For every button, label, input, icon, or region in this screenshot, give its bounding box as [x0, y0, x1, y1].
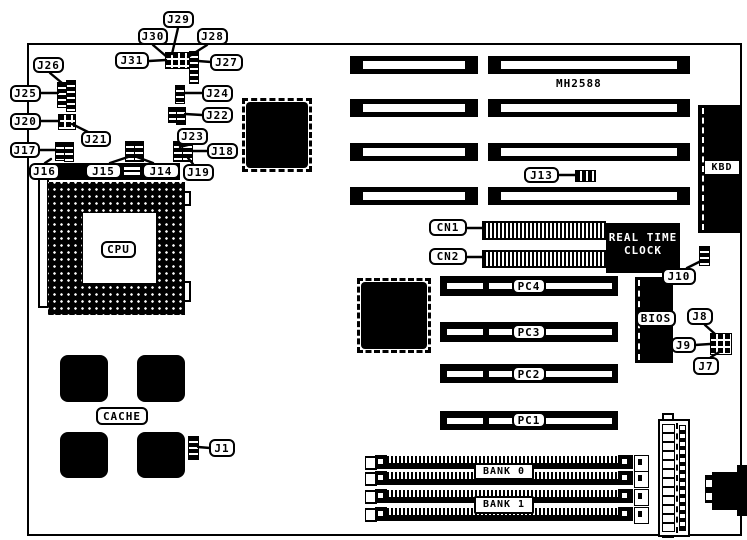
label-j16: J16: [29, 163, 60, 180]
motherboard-diagram: MH2588 KBD REAL TIME CLOCK: [0, 0, 747, 540]
label-j27: J27: [210, 54, 243, 71]
label-j29: J29: [163, 11, 194, 28]
label-bank0: BANK 0: [474, 463, 534, 480]
label-j24: J24: [202, 85, 233, 102]
label-j26: J26: [33, 57, 64, 73]
label-j28: J28: [197, 28, 228, 45]
label-cn2: CN2: [429, 248, 467, 265]
label-j8: J8: [687, 308, 713, 325]
label-j14: J14: [142, 163, 180, 179]
label-j7: J7: [693, 357, 719, 375]
label-j25: J25: [10, 85, 41, 102]
label-cn1: CN1: [429, 219, 467, 236]
label-j23: J23: [177, 128, 208, 145]
label-j18: J18: [207, 143, 238, 159]
label-j15: J15: [85, 163, 122, 179]
label-bank1: BANK 1: [474, 496, 534, 514]
label-pc4: PC4: [512, 278, 546, 294]
label-j10: J10: [662, 268, 696, 285]
label-j13: J13: [524, 167, 559, 183]
label-pc3: PC3: [512, 324, 546, 340]
label-j30: J30: [138, 28, 168, 45]
label-j9: J9: [671, 337, 696, 353]
label-pc2: PC2: [512, 366, 546, 382]
label-cpu: CPU: [101, 241, 136, 258]
label-j22: J22: [202, 107, 233, 123]
label-j31: J31: [115, 52, 149, 69]
label-cache: CACHE: [96, 407, 148, 425]
label-pc1: PC1: [512, 412, 546, 428]
label-j17: J17: [10, 142, 40, 158]
label-j20: J20: [10, 113, 41, 130]
kbd-label: KBD: [704, 160, 740, 175]
label-j19: J19: [183, 164, 214, 181]
label-j1: J1: [209, 439, 235, 457]
label-j21: J21: [81, 131, 111, 147]
label-bios: BIOS: [636, 310, 676, 327]
leader-lines: [0, 0, 747, 540]
